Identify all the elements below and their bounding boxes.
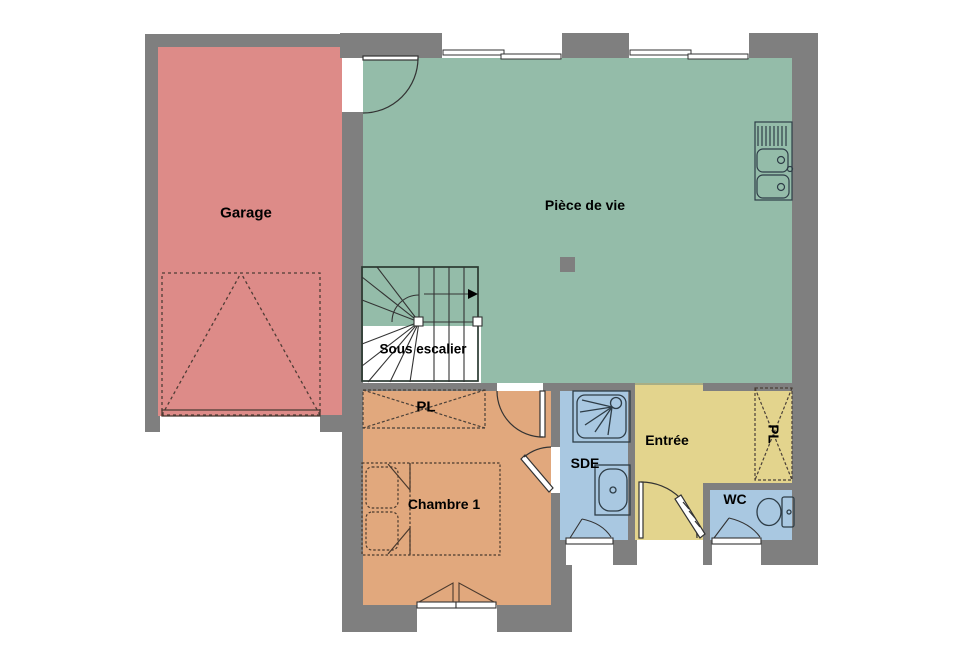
opening-chambre-door [497,383,543,391]
wall-left-garage [145,34,158,432]
label-pl-chambre: PL [416,399,435,416]
label-sous-escalier: Sous escalier [379,342,466,357]
room-entree-passage [635,383,703,391]
wall-right-main [792,33,818,565]
label-garage: Garage [220,205,272,222]
wall-bottom-b [613,540,637,565]
opening-front-door [637,540,703,565]
room-wc [710,490,792,540]
room-garage [158,47,342,416]
label-piece-de-vie: Pièce de vie [545,197,625,213]
opening-window-2 [629,33,749,58]
label-chambre-1: Chambre 1 [408,496,480,512]
wall-mid-3 [703,383,792,391]
opening-french-window [417,605,497,632]
wall-bottom-a [551,540,566,565]
label-pl-entree: PL [765,424,782,443]
wall-vertical-main [342,58,363,632]
wall-bottom-c [703,540,712,565]
opening-sde-window [566,540,613,565]
wall-mid-1 [363,383,497,391]
opening-garage-pdv-door [342,58,363,112]
wall-chambre-bottom-left [342,605,417,632]
wall-bottom-d [761,540,792,565]
room-entree-lower [635,483,703,540]
wall-garage-stub-right [320,415,363,432]
opening-garage-door [160,416,320,432]
floor-plan: Garage Pièce de vie Sous escalier PL Cha… [0,0,960,665]
opening-window-1 [442,33,562,58]
wall-top-garage [145,34,342,47]
wall-wc-left [703,483,710,540]
wall-wc-top [703,483,792,490]
wall-chambre-bottom-right [497,605,572,632]
opening-sde-door [551,447,560,493]
label-wc: WC [723,491,746,507]
wall-sde-chambre-b [551,493,560,540]
wall-sde-chambre-a [551,391,560,447]
label-entree: Entrée [645,432,689,448]
wall-mid-2 [543,383,635,391]
wall-sde-entree [628,383,635,540]
opening-wc-window [712,540,761,565]
label-sde: SDE [571,455,600,471]
wall-garage-stub-left [145,416,160,432]
